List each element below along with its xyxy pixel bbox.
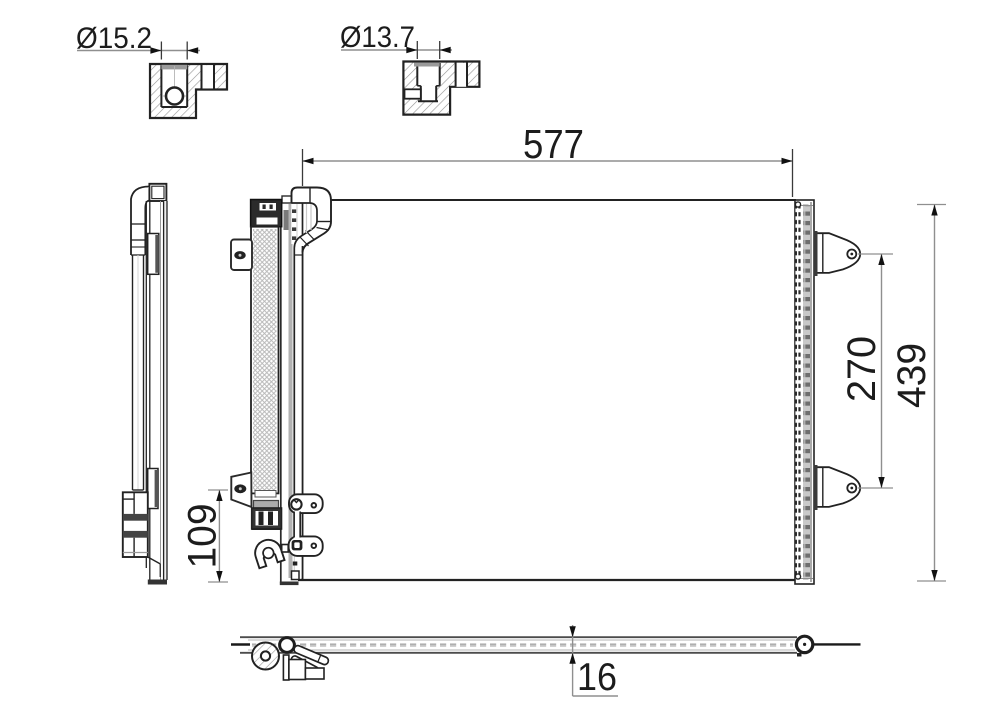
svg-text:439: 439 bbox=[890, 343, 934, 408]
svg-text:577: 577 bbox=[523, 121, 584, 167]
svg-text:270: 270 bbox=[840, 336, 884, 402]
svg-text:109: 109 bbox=[181, 504, 225, 569]
svg-text:16: 16 bbox=[577, 656, 617, 699]
svg-text:Ø13.7: Ø13.7 bbox=[340, 21, 415, 54]
